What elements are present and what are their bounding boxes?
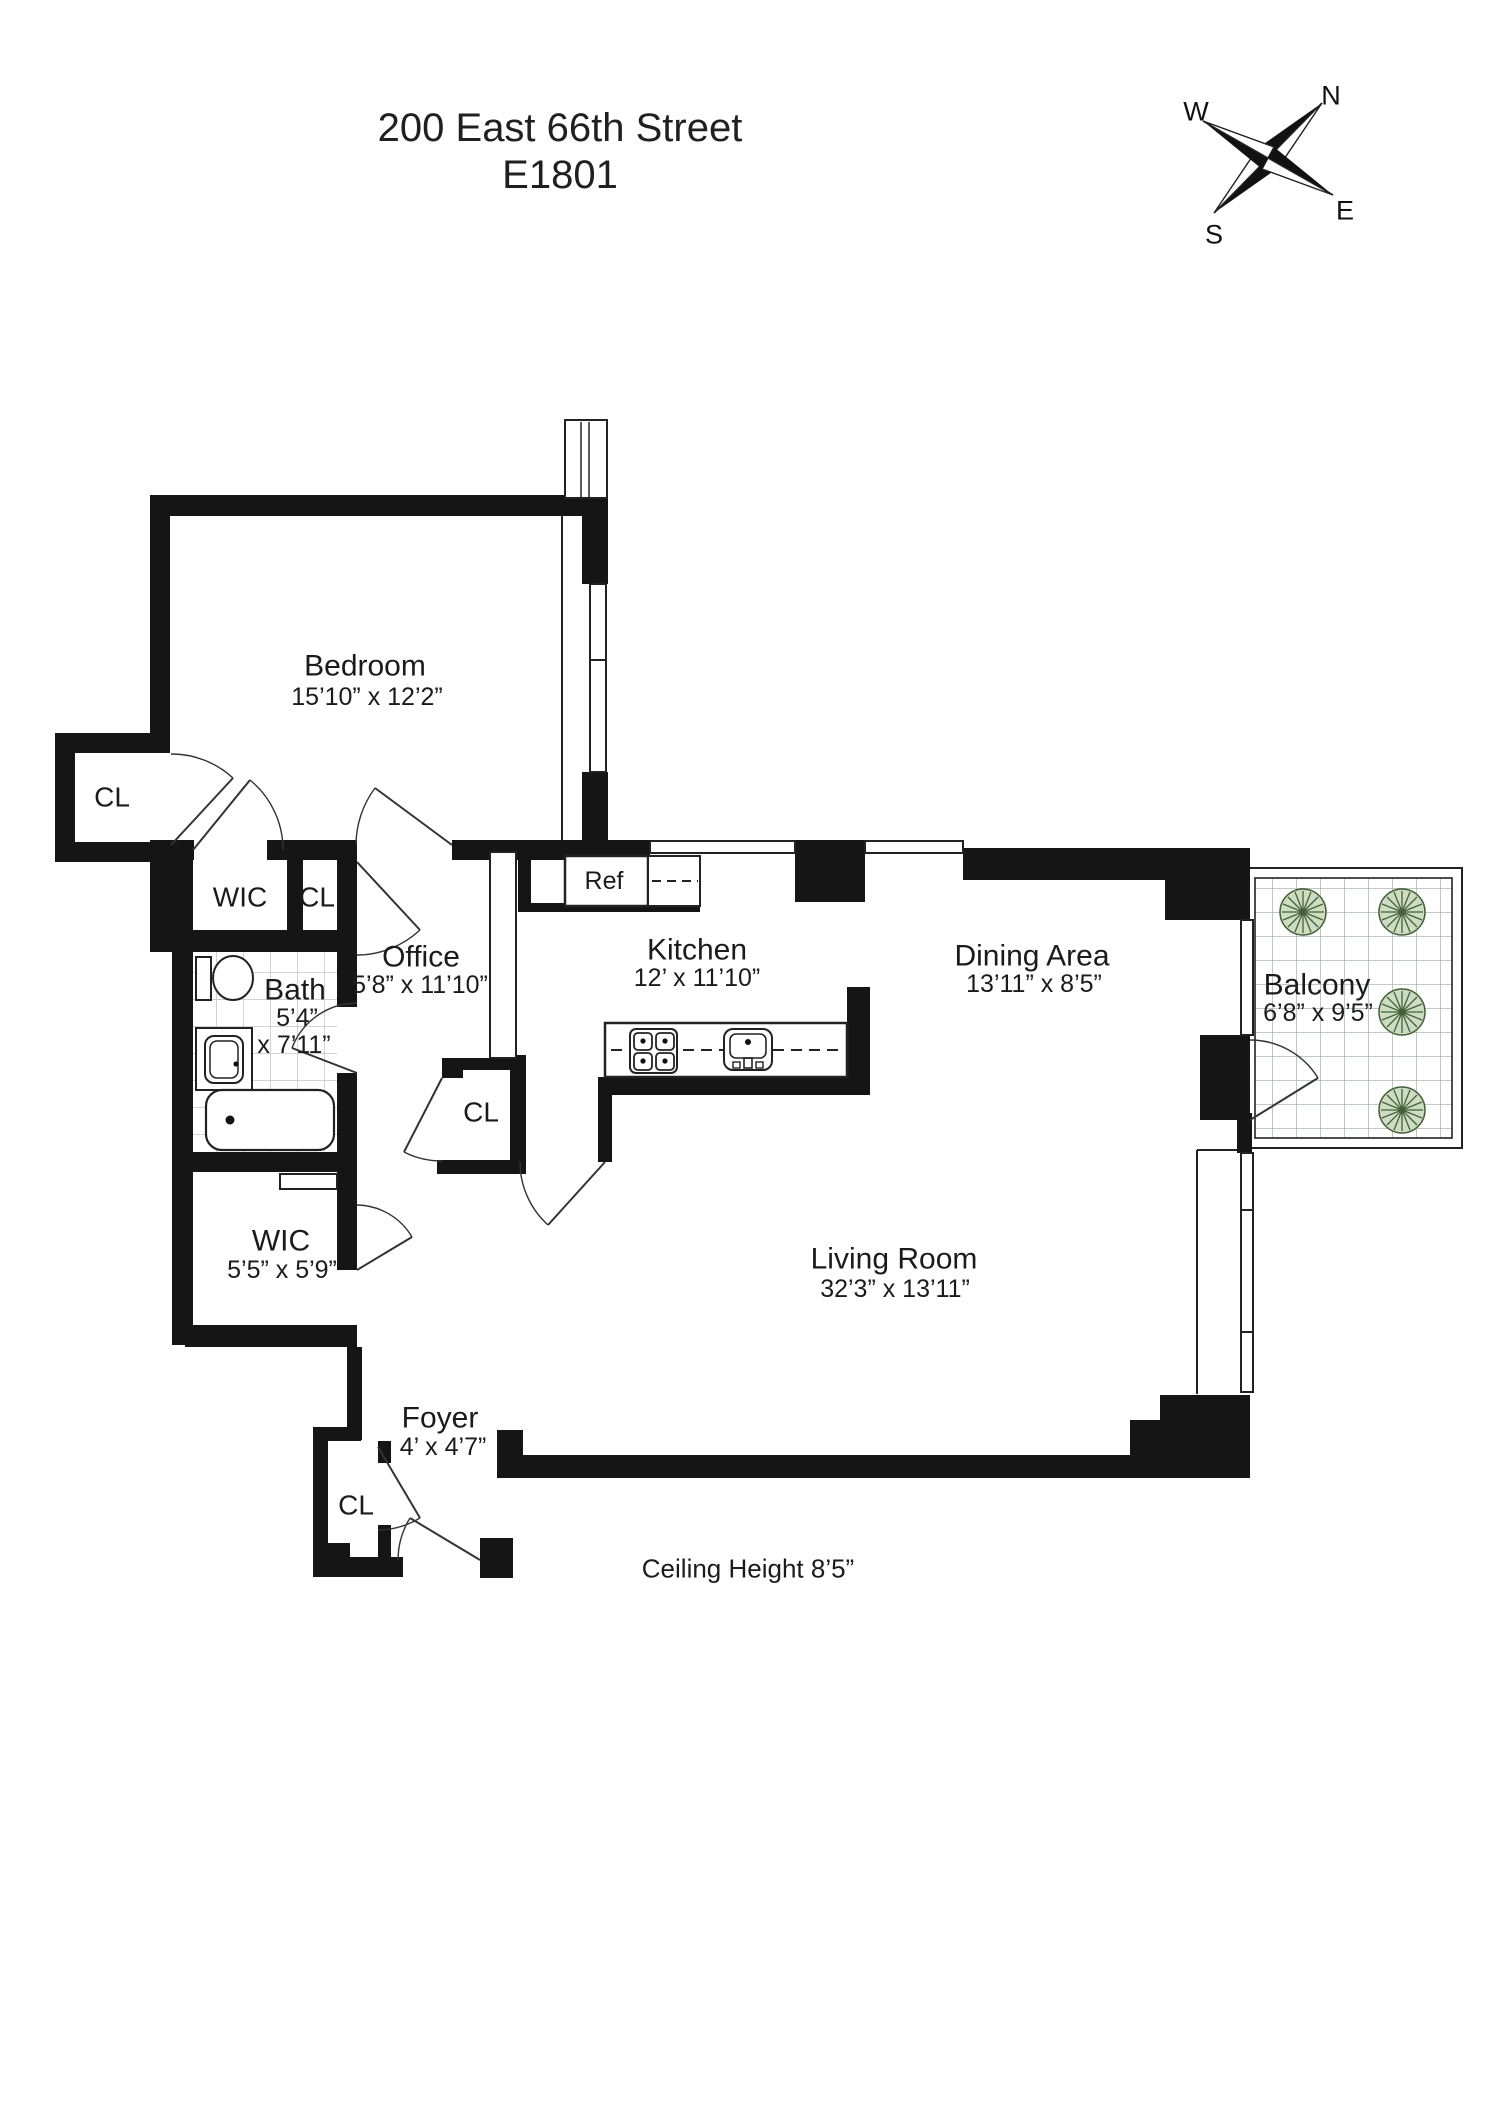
balcony-label: Balcony: [1264, 969, 1371, 1001]
kitchen-dims: 12’ x 11’10”: [634, 965, 760, 991]
stove-icon: [630, 1029, 677, 1073]
compass-e-label: E: [1336, 196, 1354, 227]
wic-upper-label: WIC: [213, 882, 267, 911]
windows-and-lines: [280, 420, 1253, 1394]
compass-w-label: W: [1183, 97, 1208, 128]
office-label: Office: [382, 941, 460, 973]
closet-foyer-label: CL: [338, 1490, 374, 1519]
bath-sink-icon: [196, 1028, 252, 1090]
kitchen-closet-door: [404, 1078, 442, 1161]
dining-label: Dining Area: [954, 940, 1109, 972]
closet-top-left-label: CL: [94, 782, 130, 811]
compass-s-label: S: [1205, 220, 1223, 251]
office-dims: 5’8” x 11’10”: [352, 972, 488, 998]
bedroom-door: [356, 788, 452, 845]
refrigerator-label: Ref: [585, 868, 624, 894]
closet-upper-label: CL: [299, 882, 335, 911]
living-room-dims: 32’3” x 13’11”: [820, 1276, 970, 1302]
closet-kitchen-label: CL: [463, 1097, 499, 1126]
wic-upper-door: [193, 780, 283, 850]
foyer-label: Foyer: [402, 1402, 479, 1434]
hall-living-door: [520, 1162, 605, 1225]
floor-plan-drawing: [0, 0, 1500, 2122]
foyer-dims: 4’ x 4’7”: [400, 1434, 487, 1460]
dining-dims: 13’11” x 8’5”: [966, 971, 1102, 997]
bedroom-label: Bedroom: [304, 650, 426, 682]
ceiling-height-note: Ceiling Height 8’5”: [642, 1555, 854, 1582]
compass-n-label: N: [1321, 81, 1341, 112]
wic-lower-label: WIC: [252, 1225, 310, 1257]
bath-dims-line2: x 7’11”: [257, 1032, 330, 1058]
toilet-icon: [196, 956, 253, 1000]
wic-lower-door: [357, 1205, 412, 1270]
balcony-dims: 6’8” x 9’5”: [1263, 1000, 1373, 1026]
entry-door: [398, 1518, 480, 1560]
closet-top-left-door: [171, 754, 233, 845]
wic-lower-dims: 5’5” x 5’9”: [227, 1257, 337, 1283]
kitchen-sink-icon: [724, 1029, 772, 1070]
bathtub-icon: [206, 1090, 334, 1150]
compass-rose-icon: [1203, 103, 1333, 213]
bath-dims-line1: 5’4”: [276, 1005, 318, 1031]
bath-label: Bath: [264, 974, 326, 1006]
bedroom-dims: 15’10” x 12’2”: [291, 684, 442, 710]
floor-plan-page: 200 East 66th Street E1801: [0, 0, 1500, 2122]
kitchen-label: Kitchen: [647, 934, 747, 966]
living-room-label: Living Room: [811, 1243, 978, 1275]
